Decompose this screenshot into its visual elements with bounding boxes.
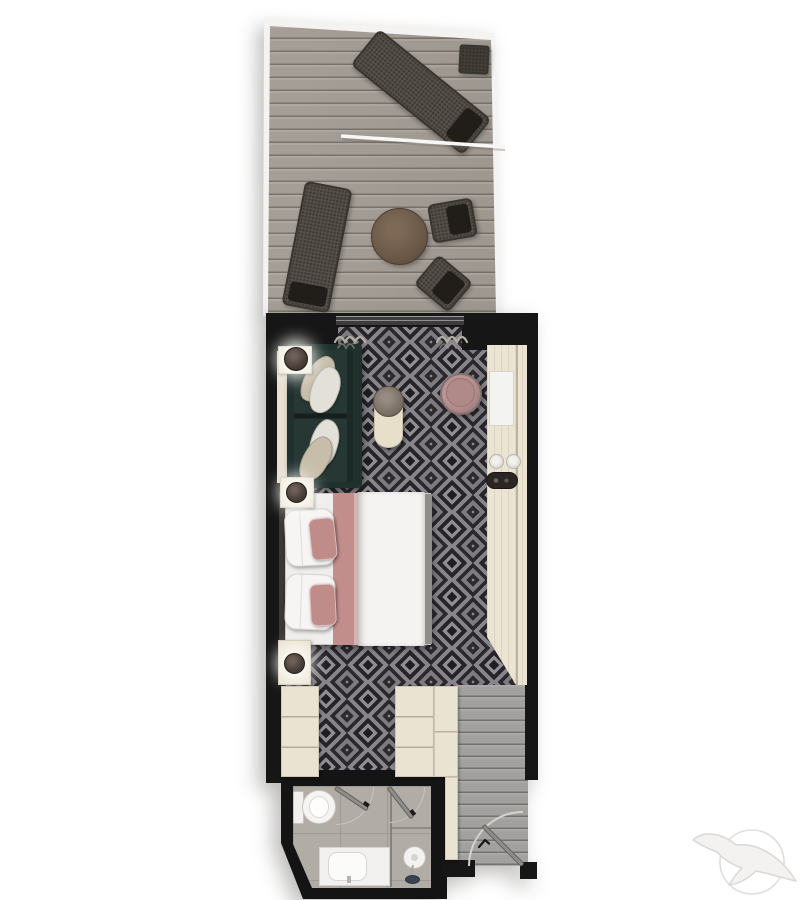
- cabin: [0, 0, 800, 900]
- wall-left: [266, 313, 284, 783]
- entry-hall-floor: [456, 685, 528, 866]
- bathroom-floor: [293, 786, 431, 888]
- wall-bottom-entry: [443, 860, 475, 877]
- sliding-door-track: [336, 316, 464, 325]
- stateroom-floor-plan: [0, 0, 800, 900]
- wall-top-left: [266, 313, 338, 350]
- wall-right: [525, 313, 538, 780]
- wall-corner-entry: [520, 862, 537, 879]
